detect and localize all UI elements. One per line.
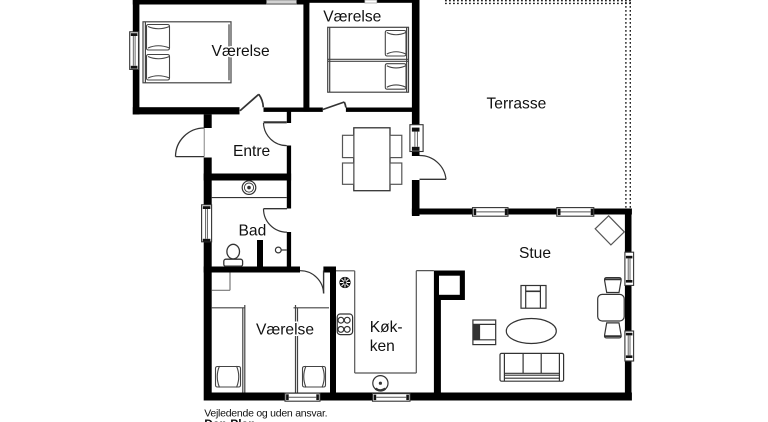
svg-text:Køk-: Køk- xyxy=(370,319,403,336)
svg-text:Værelse: Værelse xyxy=(256,322,314,339)
svg-text:Entre: Entre xyxy=(233,143,270,160)
svg-text:Værelse: Værelse xyxy=(212,43,270,60)
svg-text:Terrasse: Terrasse xyxy=(487,96,547,113)
svg-text:Dan Plan: Dan Plan xyxy=(204,417,255,422)
svg-text:Stue: Stue xyxy=(519,245,551,262)
svg-text:Bad: Bad xyxy=(239,223,267,240)
svg-text:Værelse: Værelse xyxy=(323,8,381,25)
svg-text:ken: ken xyxy=(370,338,395,355)
